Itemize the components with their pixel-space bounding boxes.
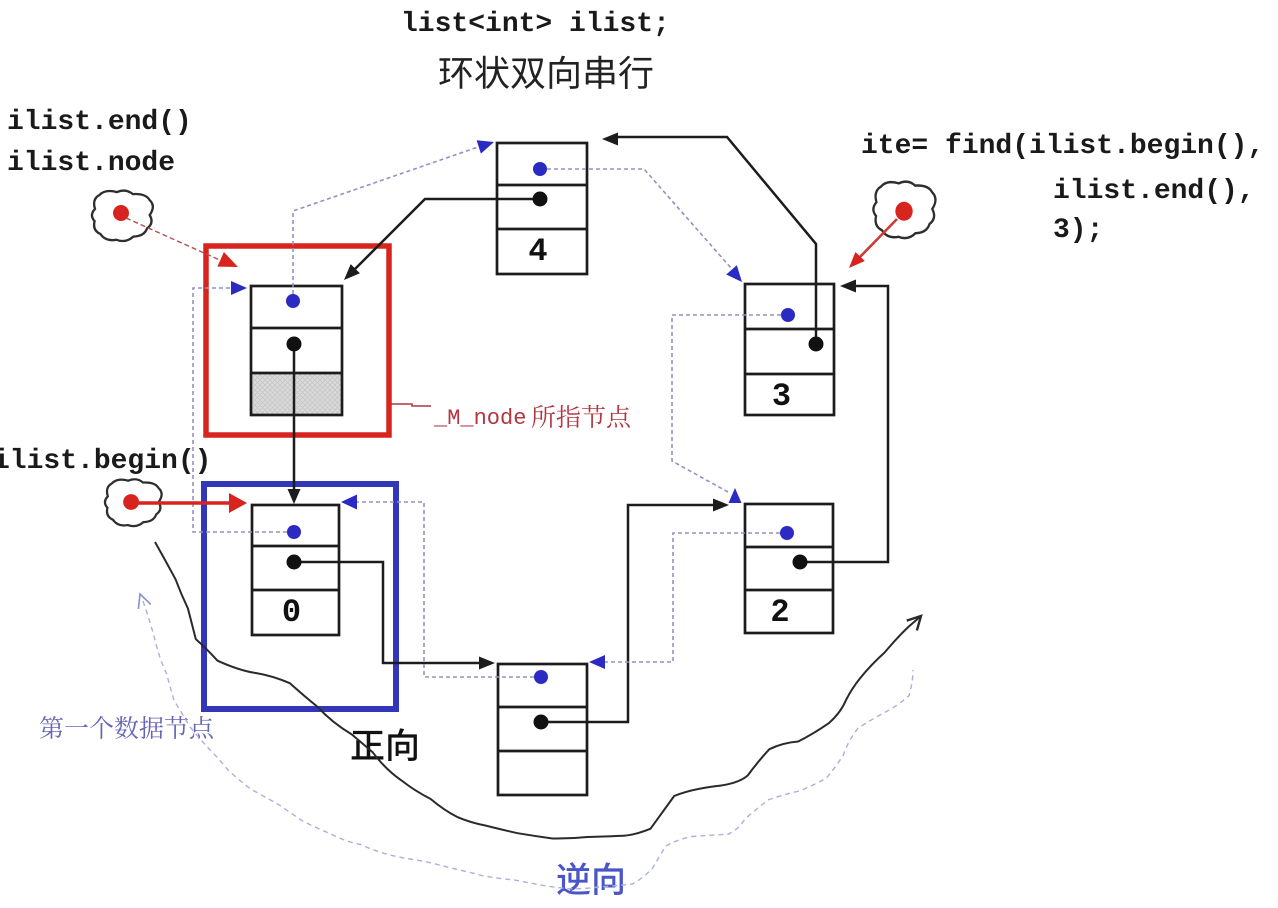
svg-text:4: 4 <box>528 233 547 270</box>
svg-text:2: 2 <box>770 594 789 631</box>
svg-text:ilist.end(),: ilist.end(), <box>1053 176 1255 207</box>
svg-text:ite= find(ilist.begin(),: ite= find(ilist.begin(), <box>861 131 1264 162</box>
svg-text:ilist.begin(): ilist.begin() <box>0 446 211 477</box>
svg-text:0: 0 <box>282 594 301 631</box>
svg-text:list<int> ilist;: list<int> ilist; <box>401 9 670 40</box>
svg-text:ilist.end(): ilist.end() <box>7 107 192 138</box>
svg-text:_M_node: _M_node <box>433 406 526 431</box>
svg-text:3);: 3); <box>1053 215 1103 246</box>
svg-text:ilist.node: ilist.node <box>7 148 175 179</box>
svg-text:3: 3 <box>772 378 791 415</box>
